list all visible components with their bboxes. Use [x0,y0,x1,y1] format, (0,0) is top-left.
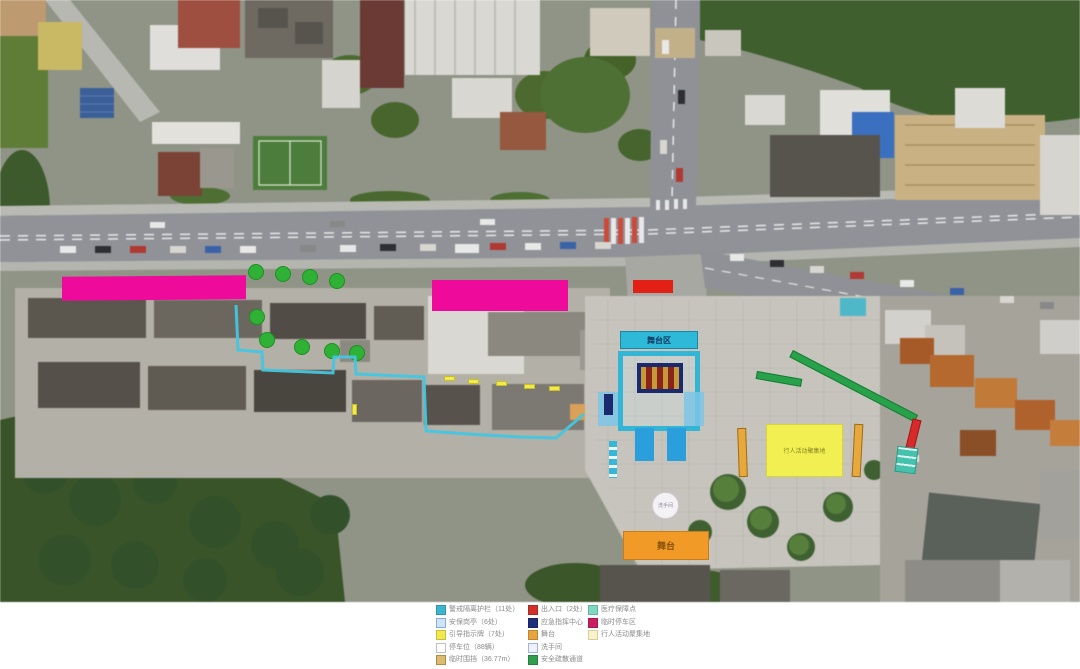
legend-label: 行人活动聚集地 [601,629,650,641]
tree-marker [275,266,291,282]
medical-support-point [894,446,918,474]
legend-item: 行人活动聚集地 [588,629,678,642]
legend-label: 警戒隔离护栏（11处） [449,604,519,616]
command-center-inner [641,367,679,389]
tree-marker [349,345,365,361]
legend-swatch [436,643,446,653]
legend-label: 医疗保障点 [601,604,636,616]
fence-bar-left [737,428,748,477]
tree-marker [259,332,275,348]
legend-label: 出入口（2处） [541,604,587,616]
guide-sign-marker [444,376,455,381]
legend-item: 安全疏散通道 [528,654,588,667]
legend-item: 停车位（88辆） [436,642,528,655]
legend-item: 医疗保障点 [588,604,678,617]
tree-marker [302,269,318,285]
legend-swatch [528,630,538,640]
legend-column-2: 出入口（2处） 应急指挥中心 舞台 洗手间 安全疏散通道 [528,604,588,667]
stage-zone-text: 舞台区 [647,335,671,346]
legend-item: 临时停车区 [588,617,678,630]
legend-swatch [528,655,538,665]
road-closure-marker [633,280,673,293]
legend-item: 临时围挡（36.77m） [436,654,528,667]
tree-marker [294,339,310,355]
legend-label: 应急指挥中心 [541,617,583,629]
legend-label: 临时围挡（36.77m） [449,654,514,666]
legend-swatch [588,618,598,628]
temporary-parking-zone-center [432,280,568,311]
legend-item: 警戒隔离护栏（11处） [436,604,528,617]
banner-cyan [609,441,617,478]
tree-marker [248,264,264,280]
legend-swatch [588,605,598,615]
legend-item: 应急指挥中心 [528,617,588,630]
stage-block: 舞台 [623,531,709,560]
tree-marker [249,309,265,325]
stage-zone-label: 舞台区 [620,331,698,349]
guide-sign-marker [496,381,507,386]
guide-sign-marker [524,384,535,389]
guide-sign-marker [352,404,357,415]
legend-label: 舞台 [541,629,555,641]
legend-swatch [436,618,446,628]
pedestrian-gathering-zone: 行人活动聚集地 [766,424,843,477]
blue-wing-right [684,392,704,426]
legend-swatch [436,655,446,665]
tree-marker [329,273,345,289]
tree-marker [324,343,340,359]
legend-swatch [528,643,538,653]
legend-item: 洗手间 [528,642,588,655]
banner-navy [604,394,613,415]
circle-marker: 洗手间 [652,492,679,519]
legend-label: 引导指示牌（7处） [449,629,509,641]
legend-item: 引导指示牌（7处） [436,629,528,642]
blue-carpet-left [635,428,654,461]
stage-text: 舞台 [657,539,675,552]
legend-swatch [528,618,538,628]
legend-column-1: 警戒隔离护栏（11处） 安保岗亭（6处） 引导指示牌（7处） 停车位（88辆） … [436,604,528,667]
legend-label: 安全疏散通道 [541,654,583,666]
guide-sign-marker [549,386,560,391]
blue-carpet-right [667,428,686,461]
legend-item: 安保岗亭（6处） [436,617,528,630]
temporary-parking-zone-left [62,275,246,301]
legend-swatch [588,630,598,640]
circle-marker-text: 洗手间 [658,502,673,509]
legend-swatch [436,605,446,615]
legend-label: 临时停车区 [601,617,636,629]
guide-sign-marker [468,379,479,384]
legend-column-3: 医疗保障点 临时停车区 行人活动聚集地 [588,604,678,667]
pedestrian-zone-text: 行人活动聚集地 [783,446,825,455]
legend: 警戒隔离护栏（11处） 安保岗亭（6处） 引导指示牌（7处） 停车位（88辆） … [436,604,678,667]
legend-label: 洗手间 [541,642,562,654]
command-center-box [637,363,683,393]
legend-item: 舞台 [528,629,588,642]
legend-swatch [528,605,538,615]
legend-label: 停车位（88辆） [449,642,499,654]
annotated-aerial-map: 舞台区 行人活动聚集地 舞台 洗手间 警戒隔离护栏（11处） 安保岗亭（6处 [0,0,1080,669]
legend-swatch [436,630,446,640]
legend-label: 安保岗亭（6处） [449,617,502,629]
legend-item: 出入口（2处） [528,604,588,617]
